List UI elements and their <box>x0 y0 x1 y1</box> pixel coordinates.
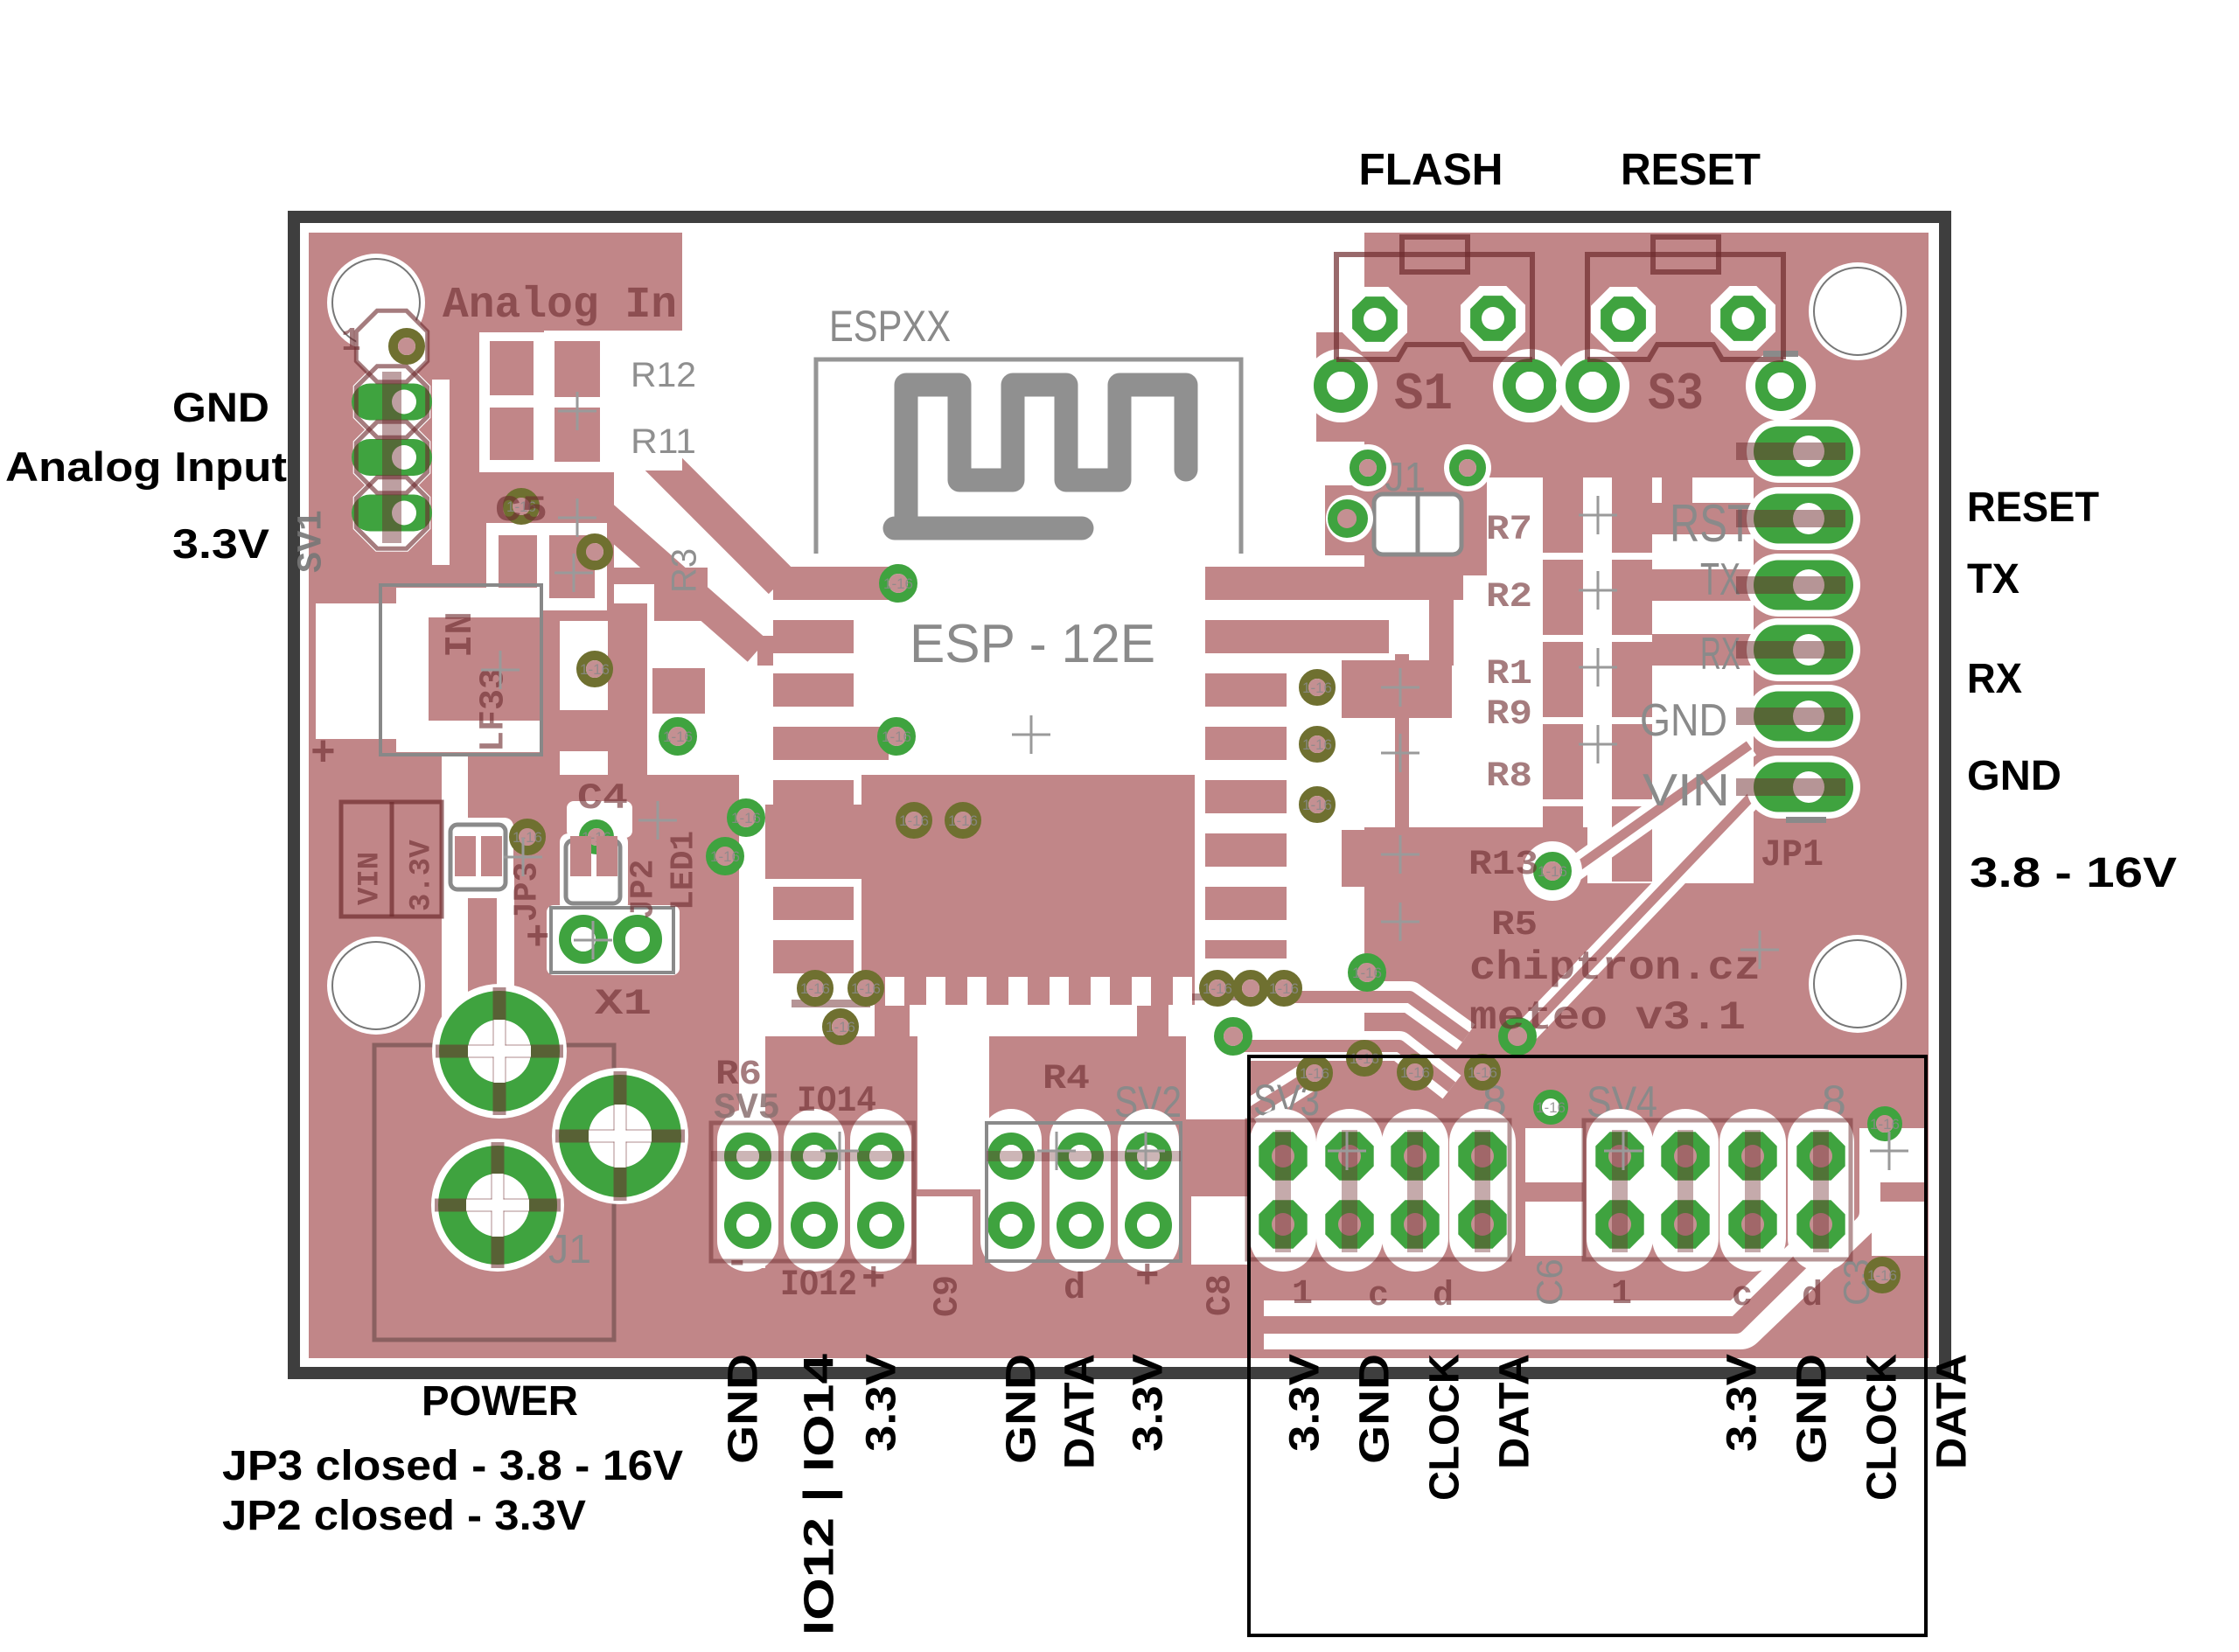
svg-text:R11: R11 <box>631 422 696 461</box>
svg-text:RX: RX <box>1700 629 1740 680</box>
svg-text:IO12: IO12 <box>780 1264 857 1306</box>
svg-text:1-16: 1-16 <box>1538 863 1567 880</box>
svg-text:LED1: LED1 <box>666 831 703 910</box>
svg-text:FLASH: FLASH <box>1359 144 1503 194</box>
svg-text:VIN: VIN <box>353 852 387 905</box>
svg-text:GND: GND <box>998 1354 1044 1464</box>
svg-text:1-16: 1-16 <box>1468 1064 1497 1081</box>
svg-text:d: d <box>1433 1277 1454 1316</box>
svg-text:+: + <box>526 916 550 961</box>
svg-text:JP1: JP1 <box>1761 833 1824 877</box>
svg-text:X1: X1 <box>595 983 652 1025</box>
svg-text:RESET: RESET <box>1621 144 1761 194</box>
svg-text:GND: GND <box>1640 695 1727 746</box>
svg-text:1-16: 1-16 <box>731 810 761 826</box>
svg-text:3.3V: 3.3V <box>405 840 438 911</box>
svg-text:1-16: 1-16 <box>1400 1064 1430 1081</box>
svg-text:1-16: 1-16 <box>1350 1050 1379 1067</box>
svg-text:R13: R13 <box>1468 846 1538 885</box>
svg-text:CLOCK: CLOCK <box>1421 1354 1468 1501</box>
svg-text:1: 1 <box>341 323 361 360</box>
svg-text:C4: C4 <box>577 777 628 819</box>
svg-text:Analog In: Analog In <box>443 281 677 331</box>
svg-text:1-16: 1-16 <box>1300 1065 1329 1082</box>
svg-text:TX: TX <box>1700 554 1740 605</box>
svg-text:DATA: DATA <box>1929 1354 1975 1469</box>
svg-text:C9: C9 <box>928 1275 967 1317</box>
svg-text:1-16: 1-16 <box>1536 1099 1566 1116</box>
svg-text:1-16: 1-16 <box>800 980 830 997</box>
svg-text:JP3: JP3 <box>509 862 547 922</box>
svg-text:IO12 | IO14: IO12 | IO14 <box>796 1354 842 1635</box>
svg-text:1: 1 <box>1611 1275 1632 1314</box>
svg-text:DATA: DATA <box>1057 1354 1103 1469</box>
svg-text:GND: GND <box>1789 1354 1835 1464</box>
svg-text:1-16: 1-16 <box>882 728 911 745</box>
svg-text:1-16: 1-16 <box>580 661 610 678</box>
svg-text:GND: GND <box>720 1354 766 1464</box>
svg-text:LF33: LF33 <box>474 668 513 752</box>
svg-text:RESET: RESET <box>1967 484 2099 531</box>
svg-text:1-16: 1-16 <box>1302 797 1332 813</box>
svg-text:ESPXX: ESPXX <box>829 302 951 351</box>
svg-text:GND: GND <box>172 384 269 430</box>
svg-text:c: c <box>1368 1277 1389 1316</box>
svg-text:RX: RX <box>1967 656 2022 702</box>
svg-text:JP2 closed - 3.3V: JP2 closed - 3.3V <box>222 1493 586 1539</box>
svg-text:GND: GND <box>1967 753 2061 799</box>
svg-text:+: + <box>861 1257 886 1302</box>
svg-text:1-16: 1-16 <box>1870 1116 1900 1133</box>
svg-text:JP2: JP2 <box>625 860 663 919</box>
svg-text:1-16: 1-16 <box>851 980 881 997</box>
svg-text:SV1: SV1 <box>292 510 331 573</box>
svg-text:JP3 closed - 3.8 - 16V: JP3 closed - 3.8 - 16V <box>222 1443 683 1489</box>
svg-text:VIN: VIN <box>1643 765 1730 816</box>
svg-text:+: + <box>1135 1254 1160 1300</box>
svg-text:chiptron.cz: chiptron.cz <box>1469 945 1761 991</box>
svg-text:meteo v3.1: meteo v3.1 <box>1469 995 1746 1041</box>
svg-text:d: d <box>1064 1267 1085 1309</box>
svg-text:CLOCK: CLOCK <box>1859 1354 1905 1501</box>
svg-text:R3: R3 <box>665 548 703 593</box>
svg-text:1-16: 1-16 <box>1352 965 1382 981</box>
svg-text:1-16: 1-16 <box>663 728 693 745</box>
svg-text:3.3V: 3.3V <box>858 1354 904 1452</box>
svg-text:3.3V: 3.3V <box>1719 1354 1765 1452</box>
svg-text:3.8 - 16V: 3.8 - 16V <box>1970 850 2177 896</box>
svg-text:R5: R5 <box>1491 906 1538 945</box>
svg-text:1-16: 1-16 <box>513 829 542 846</box>
svg-text:C5: C5 <box>495 490 548 532</box>
svg-text:-: - <box>725 1240 750 1286</box>
svg-text:S3: S3 <box>1648 366 1704 425</box>
svg-text:R1: R1 <box>1486 655 1532 694</box>
svg-text:R12: R12 <box>631 356 696 394</box>
svg-text:TX: TX <box>1967 556 2019 603</box>
svg-text:1-16: 1-16 <box>1867 1267 1897 1284</box>
svg-text:3.3V: 3.3V <box>1125 1354 1171 1452</box>
svg-text:+: + <box>310 731 336 778</box>
svg-text:R7: R7 <box>1486 511 1532 550</box>
svg-text:d: d <box>1802 1277 1823 1316</box>
svg-text:3.3V: 3.3V <box>1281 1354 1328 1452</box>
svg-text:Analog Input: Analog Input <box>5 443 287 490</box>
svg-text:1-16: 1-16 <box>1302 736 1332 753</box>
svg-text:c: c <box>1732 1277 1753 1316</box>
svg-text:C6: C6 <box>1529 1258 1570 1306</box>
svg-text:R2: R2 <box>1486 578 1532 617</box>
svg-text:R9: R9 <box>1486 695 1532 735</box>
svg-text:1-16: 1-16 <box>1269 980 1299 997</box>
svg-text:DATA: DATA <box>1491 1354 1538 1469</box>
svg-text:1-16: 1-16 <box>710 848 740 865</box>
svg-text:R8: R8 <box>1486 757 1532 797</box>
svg-text:IO14: IO14 <box>797 1080 876 1122</box>
svg-text:1-16: 1-16 <box>948 812 978 829</box>
svg-text:POWER: POWER <box>422 1378 578 1425</box>
svg-text:1-16: 1-16 <box>1203 980 1232 997</box>
svg-text:1-16: 1-16 <box>1302 680 1332 696</box>
svg-text:R4: R4 <box>1043 1060 1090 1099</box>
svg-text:IN: IN <box>439 611 483 658</box>
svg-text:1: 1 <box>1292 1275 1313 1314</box>
svg-text:1-16: 1-16 <box>883 575 913 592</box>
svg-text:ESP - 12E: ESP - 12E <box>910 614 1155 674</box>
svg-text:SV5: SV5 <box>714 1087 780 1129</box>
svg-text:S1: S1 <box>1394 366 1453 425</box>
svg-text:3.3V: 3.3V <box>172 520 270 567</box>
svg-text:1-16: 1-16 <box>826 1019 855 1035</box>
svg-text:C8: C8 <box>1201 1274 1240 1316</box>
svg-text:GND: GND <box>1351 1354 1398 1464</box>
svg-text:1-16: 1-16 <box>899 812 929 829</box>
